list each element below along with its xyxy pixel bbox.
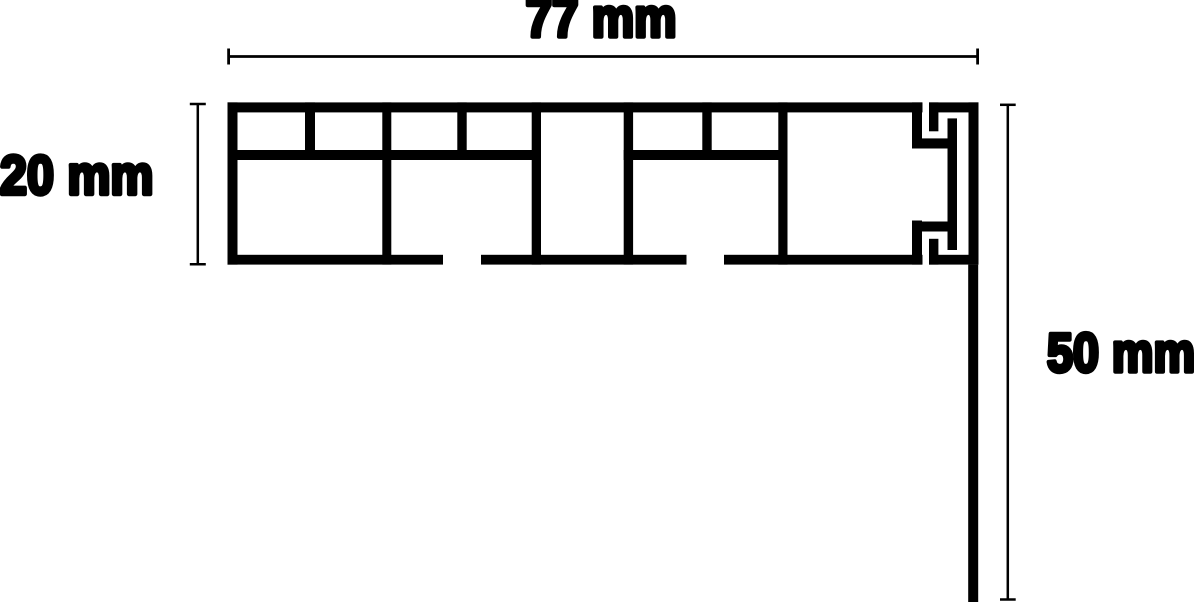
svg-text:77 mm: 77 mm [526, 0, 677, 48]
svg-text:20 mm: 20 mm [0, 144, 154, 206]
svg-text:50 mm: 50 mm [1047, 322, 1195, 384]
